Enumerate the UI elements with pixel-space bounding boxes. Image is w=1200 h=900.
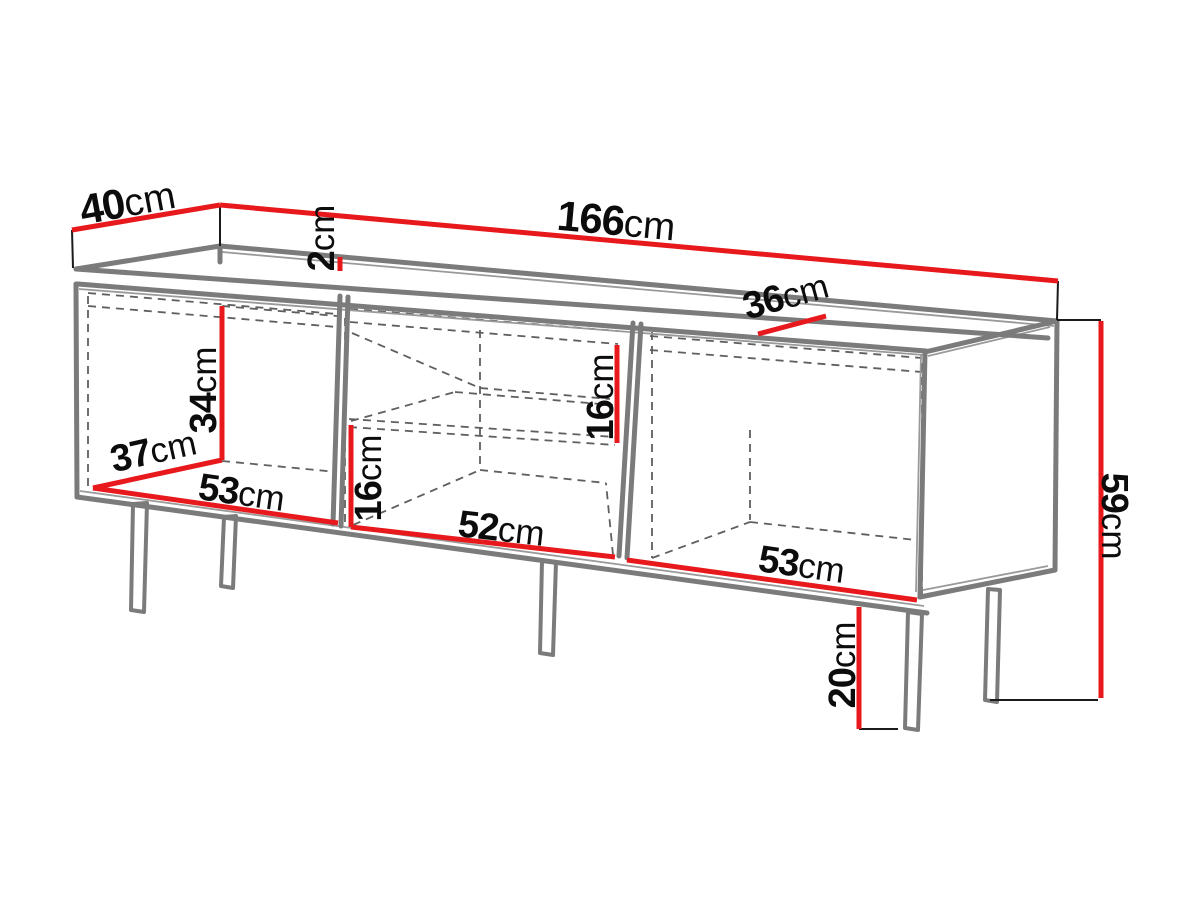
right-face-right-edge: [1055, 321, 1057, 570]
dim-label-middle-upper-height: 16cm: [580, 354, 622, 441]
dim-label-width: 166cm: [555, 192, 677, 250]
dim-label-top-thickness: 2cm: [301, 205, 343, 272]
right-side-face: [920, 321, 1057, 597]
furniture-dimension-diagram: 40cm 166cm 2cm 36cm 34cm 37cm 53cm 16cm …: [0, 0, 1200, 900]
dim-label-left-height: 34cm: [183, 347, 225, 434]
leg-front-middle: [540, 561, 556, 655]
depth-extension-left: [72, 230, 73, 268]
leg-rear-left: [221, 516, 236, 588]
dim-label-leg-height: 20cm: [822, 622, 864, 709]
width-extension-right: [1057, 281, 1058, 320]
dim-label-middle-lower-height: 16cm: [348, 435, 390, 522]
cabinet-drawing: 40cm 166cm 2cm 36cm 34cm 37cm 53cm 16cm …: [0, 0, 1200, 900]
leg-front-left: [131, 503, 147, 612]
dim-label-depth: 40cm: [76, 170, 179, 234]
carcass-left-edge: [76, 284, 77, 497]
leg-front-right: [905, 612, 922, 730]
dim-label-total-height: 59cm: [1093, 473, 1135, 560]
leg-rear-right: [985, 589, 1000, 702]
